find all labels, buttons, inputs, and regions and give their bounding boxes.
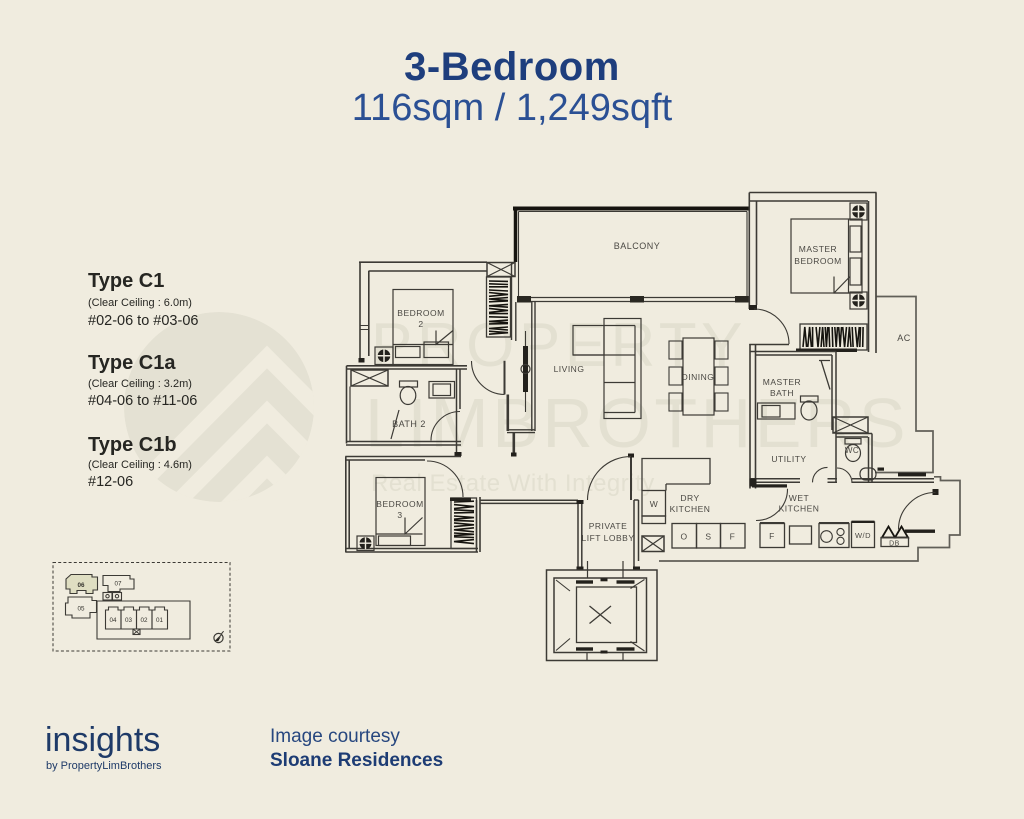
svg-text:Type C1b: Type C1b xyxy=(88,434,177,456)
svg-text:BALCONY: BALCONY xyxy=(614,241,661,251)
svg-text:W/D: W/D xyxy=(855,531,871,540)
svg-text:W: W xyxy=(650,499,659,509)
svg-text:by PropertyLimBrothers: by PropertyLimBrothers xyxy=(46,760,162,772)
svg-text:07: 07 xyxy=(114,581,122,588)
svg-text:Image courtesy: Image courtesy xyxy=(270,726,400,747)
svg-text:KITCHEN: KITCHEN xyxy=(670,504,711,514)
svg-text:KITCHEN: KITCHEN xyxy=(779,504,820,514)
svg-text:S: S xyxy=(705,532,711,542)
svg-text:BEDROOM: BEDROOM xyxy=(397,308,444,318)
svg-text:BATH 2: BATH 2 xyxy=(392,419,426,429)
svg-text:F: F xyxy=(730,532,736,542)
svg-text:Type C1: Type C1 xyxy=(88,270,164,292)
svg-text:01: 01 xyxy=(156,617,164,624)
svg-text:DB: DB xyxy=(889,541,900,548)
svg-text:116sqm / 1,249sqft: 116sqm / 1,249sqft xyxy=(352,87,673,129)
svg-text:MASTER: MASTER xyxy=(763,377,801,387)
svg-text:BEDROOM: BEDROOM xyxy=(376,499,423,509)
svg-text:O: O xyxy=(680,532,687,542)
svg-text:PRIVATE: PRIVATE xyxy=(589,521,628,531)
svg-text:LIFT LOBBY: LIFT LOBBY xyxy=(581,533,634,543)
svg-text:LIVING: LIVING xyxy=(554,364,585,374)
svg-text:02: 02 xyxy=(140,617,148,624)
svg-text:F: F xyxy=(769,531,775,541)
svg-text:Sloane Residences: Sloane Residences xyxy=(270,750,443,771)
svg-text:05: 05 xyxy=(77,606,85,613)
svg-text:DRY: DRY xyxy=(680,493,699,503)
svg-text:BATH: BATH xyxy=(770,388,794,398)
svg-text:WET: WET xyxy=(789,493,809,503)
svg-text:(Clear Ceiling : 3.2m): (Clear Ceiling : 3.2m) xyxy=(88,378,192,390)
svg-text:(Clear Ceiling : 6.0m): (Clear Ceiling : 6.0m) xyxy=(88,297,192,309)
svg-text:BEDROOM: BEDROOM xyxy=(794,256,841,266)
svg-text:(Clear Ceiling : 4.6m): (Clear Ceiling : 4.6m) xyxy=(88,459,192,471)
svg-text:3: 3 xyxy=(397,510,402,520)
svg-text:03: 03 xyxy=(125,617,133,624)
svg-text:#12-06: #12-06 xyxy=(88,474,133,490)
svg-text:06: 06 xyxy=(77,582,85,589)
svg-text:Real Estate With Integrity: Real Estate With Integrity xyxy=(371,470,655,497)
svg-text:#02-06 to #03-06: #02-06 to #03-06 xyxy=(88,313,198,329)
svg-text:3-Bedroom: 3-Bedroom xyxy=(404,45,620,89)
svg-text:#04-06 to #11-06: #04-06 to #11-06 xyxy=(88,393,197,409)
svg-text:04: 04 xyxy=(109,617,117,624)
svg-text:Type C1a: Type C1a xyxy=(88,352,176,374)
svg-text:2: 2 xyxy=(418,319,423,329)
svg-text:insights: insights xyxy=(45,721,160,759)
svg-text:UTILITY: UTILITY xyxy=(771,454,806,464)
svg-text:MASTER: MASTER xyxy=(799,244,837,254)
svg-text:AC: AC xyxy=(897,333,911,343)
svg-text:DINING: DINING xyxy=(682,372,715,382)
